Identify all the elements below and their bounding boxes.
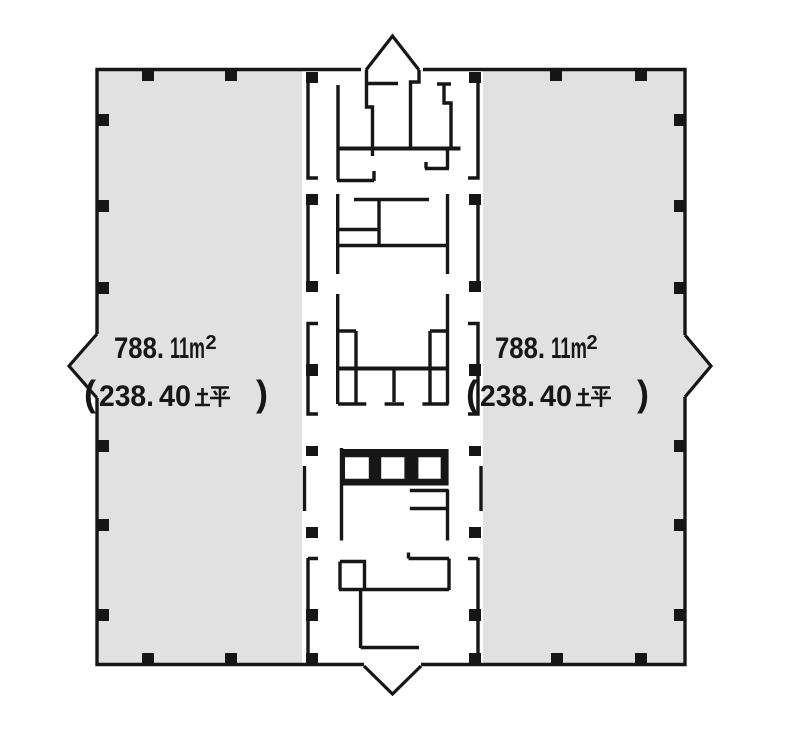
svg-text:11m: 11m	[170, 332, 205, 365]
svg-text:(: (	[466, 373, 478, 414]
svg-text:2: 2	[587, 332, 598, 354]
svg-text:): )	[256, 373, 268, 414]
svg-text:788.: 788.	[114, 332, 164, 365]
svg-text:11m: 11m	[551, 332, 587, 365]
svg-text:(: (	[84, 373, 96, 414]
svg-text:40: 40	[540, 380, 572, 413]
svg-text:): )	[637, 373, 649, 414]
svg-text:238.: 238.	[480, 380, 535, 413]
svg-text:238.: 238.	[99, 380, 154, 413]
svg-text:2: 2	[206, 332, 217, 354]
svg-text:788.: 788.	[495, 332, 545, 365]
svg-text:40: 40	[159, 380, 191, 413]
